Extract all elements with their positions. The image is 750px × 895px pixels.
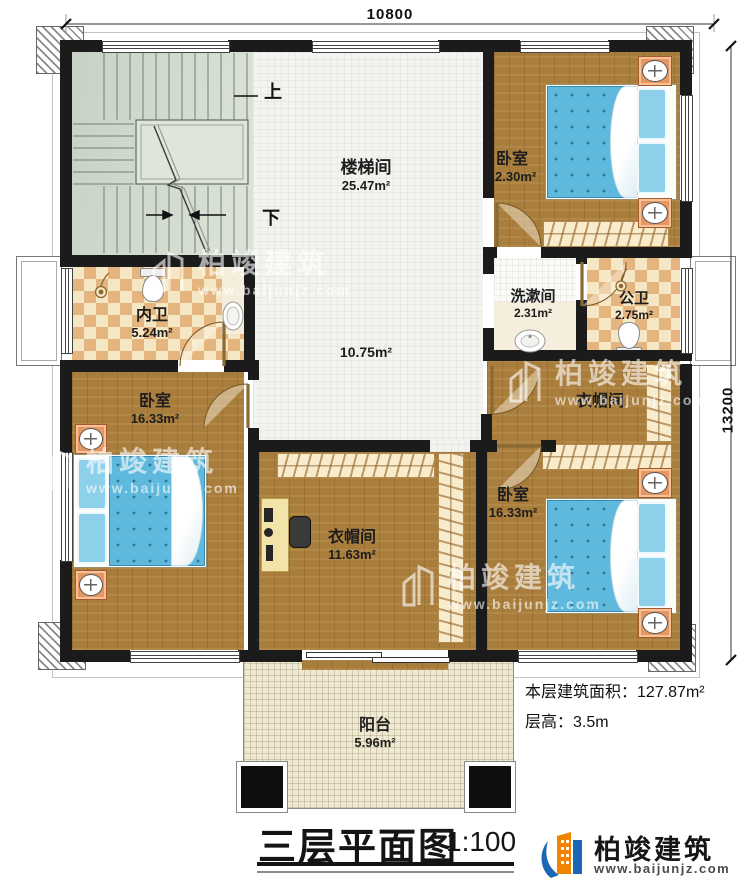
brand-website: www.baijunjz.com xyxy=(594,861,730,876)
floor-area-label: 本层建筑面积： xyxy=(525,684,637,701)
dressing-table-item-2 xyxy=(266,545,273,561)
room-area: 25.47m² xyxy=(342,178,390,194)
logo-swoosh xyxy=(542,841,559,878)
wall-segment xyxy=(483,350,692,361)
wall-segment xyxy=(541,247,692,258)
nightstand-lamp-2 xyxy=(638,198,672,228)
room-label-balcony: 阳台 5.96m² xyxy=(354,716,395,751)
bed-bottom-right-pillow-1 xyxy=(637,502,667,554)
wall-segment xyxy=(228,40,312,52)
wall-segment xyxy=(60,560,72,662)
inner-bathroom-counter xyxy=(222,267,244,334)
wardrobe-cloakroom-right xyxy=(646,364,672,442)
bay-window-left xyxy=(16,256,62,366)
wall-segment xyxy=(470,440,497,452)
wall-segment xyxy=(483,247,497,258)
room-area: 2.75m² xyxy=(615,308,653,322)
room-label-bedroom-bottom-right: 卧室 16.33m² xyxy=(489,486,537,521)
balcony-sliding-door-panel-2 xyxy=(372,657,450,663)
balcony-pillar-right xyxy=(469,766,511,808)
nightstand-lamp-1 xyxy=(638,56,672,86)
room-label-bedroom-top-right: 卧室 12.30m² xyxy=(488,150,536,185)
room-area: 11.63m² xyxy=(328,547,376,563)
wall-segment xyxy=(541,440,556,452)
bed-bottom-right-sheet xyxy=(610,500,638,612)
wall-segment xyxy=(248,372,259,380)
dimension-height: 13200 xyxy=(720,387,737,434)
floor-height-value: 3.5m xyxy=(573,714,609,731)
window-top-bedroom xyxy=(520,41,610,53)
hall-floor xyxy=(253,52,483,445)
stairwell-floor xyxy=(72,52,253,255)
wall-segment xyxy=(244,255,255,372)
balcony-sliding-door-panel-1 xyxy=(306,652,382,658)
room-label-cloakroom-right: 衣帽间 xyxy=(576,392,624,411)
stair-down-label: 下 xyxy=(262,204,280,230)
logo-building-blue xyxy=(573,840,582,874)
window-right-bedroom xyxy=(681,95,693,202)
window-bay-right xyxy=(681,268,693,354)
title-underline-thin xyxy=(257,871,514,873)
floor-height-label: 层高： xyxy=(525,714,573,731)
wall-segment xyxy=(224,360,259,372)
window-bottom-bedroom-left xyxy=(130,651,240,663)
wall-segment xyxy=(438,40,520,52)
floor-height-note: 层高：3.5m xyxy=(525,708,609,732)
window-left-bedroom xyxy=(61,452,73,562)
window-bottom-bedroom-right xyxy=(518,651,638,663)
room-area: 5.24m² xyxy=(131,325,172,341)
wall-segment xyxy=(680,364,692,662)
window-top-stairwell xyxy=(102,41,230,53)
wall-segment xyxy=(448,650,518,662)
room-label-washroom: 洗漱间 2.31m² xyxy=(510,288,555,320)
title-underline-thick xyxy=(257,862,514,866)
wall-segment xyxy=(576,258,587,264)
room-name: 卧室 xyxy=(496,150,528,169)
room-name: 洗漱间 xyxy=(510,288,555,306)
nightstand-lamp-6 xyxy=(638,608,672,638)
room-area: 10.75m² xyxy=(340,344,392,361)
room-name: 公卫 xyxy=(619,290,649,308)
room-name: 内卫 xyxy=(136,306,168,325)
floor-area-value: 127.87m² xyxy=(637,684,705,701)
bed-left-pillow-1 xyxy=(77,458,107,510)
wardrobe-cloakroom-center-right xyxy=(438,453,464,643)
bed-top-right-pillow-2 xyxy=(637,142,667,194)
room-label-inner-bathroom: 内卫 5.24m² xyxy=(131,306,172,341)
room-name: 楼梯间 xyxy=(341,158,392,178)
bed-top-right-sheet xyxy=(610,86,638,198)
wall-segment xyxy=(483,258,494,274)
room-name: 阳台 xyxy=(359,716,391,735)
room-name: 卧室 xyxy=(139,392,171,411)
wall-segment xyxy=(680,40,692,95)
room-label-cloakroom-center: 衣帽间 11.63m² xyxy=(328,528,376,563)
bay-window-right xyxy=(690,256,736,366)
logo-building-orange xyxy=(557,832,571,874)
dressing-table-item xyxy=(264,528,273,537)
dimension-width: 10800 xyxy=(367,6,414,23)
bed-top-right-pillow-1 xyxy=(637,88,667,140)
floor-plan-page: 10800 13200 上 下 楼梯间 25.47m² 10.75m² 卧室 1… xyxy=(0,0,750,895)
balcony-pillar-left xyxy=(241,766,283,808)
drawing-scale: 1:100 xyxy=(446,826,516,858)
room-label-bedroom-left: 卧室 16.33m² xyxy=(131,392,179,427)
floor-area-note: 本层建筑面积：127.87m² xyxy=(525,678,705,702)
wall-segment xyxy=(60,364,72,452)
room-label-stairwell: 楼梯间 25.47m² xyxy=(341,158,392,194)
wall-segment xyxy=(248,440,430,452)
room-area: 16.33m² xyxy=(131,411,179,427)
wall-segment xyxy=(60,360,178,372)
window-top-hall xyxy=(312,41,440,53)
bed-left-pillow-2 xyxy=(77,512,107,564)
brand-logo-icon xyxy=(537,826,589,882)
wardrobe-bedroom-bottom-right xyxy=(542,444,672,470)
wall-segment xyxy=(248,428,259,662)
wall-segment xyxy=(483,328,494,350)
stair-up-label: 上 xyxy=(264,78,282,104)
room-area: 16.33m² xyxy=(489,505,537,521)
toilet-inner-bathroom xyxy=(140,268,166,302)
wardrobe-cloakroom-center-top xyxy=(277,453,435,478)
room-name: 衣帽间 xyxy=(576,392,624,411)
room-label-hall-area: 10.75m² xyxy=(340,344,392,361)
room-area: 5.96m² xyxy=(354,735,395,751)
room-name: 卧室 xyxy=(497,486,529,505)
wall-segment xyxy=(60,255,255,267)
window-bay-left xyxy=(61,268,73,354)
nightstand-lamp-3 xyxy=(75,424,107,454)
wall-segment xyxy=(476,452,487,650)
toilet-bowl xyxy=(618,322,640,349)
toilet-bowl xyxy=(142,275,164,302)
room-area: 2.31m² xyxy=(514,306,552,320)
bed-bottom-right-pillow-2 xyxy=(637,556,667,608)
room-name: 衣帽间 xyxy=(328,528,376,547)
room-label-public-bathroom: 公卫 2.75m² xyxy=(615,290,653,322)
room-area: 12.30m² xyxy=(488,169,536,185)
nightstand-lamp-5 xyxy=(638,468,672,498)
nightstand-lamp-4 xyxy=(75,570,107,600)
dressing-table-mirror xyxy=(264,508,273,522)
dressing-stool xyxy=(289,516,311,548)
wall-segment xyxy=(60,40,72,256)
